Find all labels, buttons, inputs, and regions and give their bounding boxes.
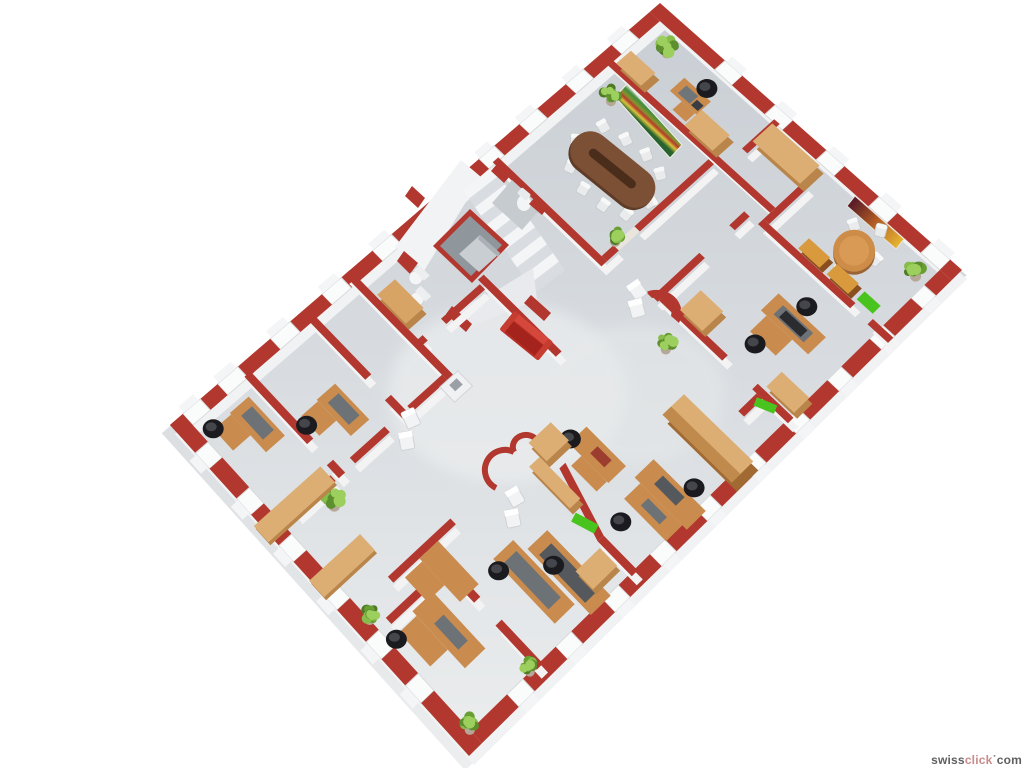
svg-text:swissclick˙com: swissclick˙com: [931, 753, 1022, 767]
